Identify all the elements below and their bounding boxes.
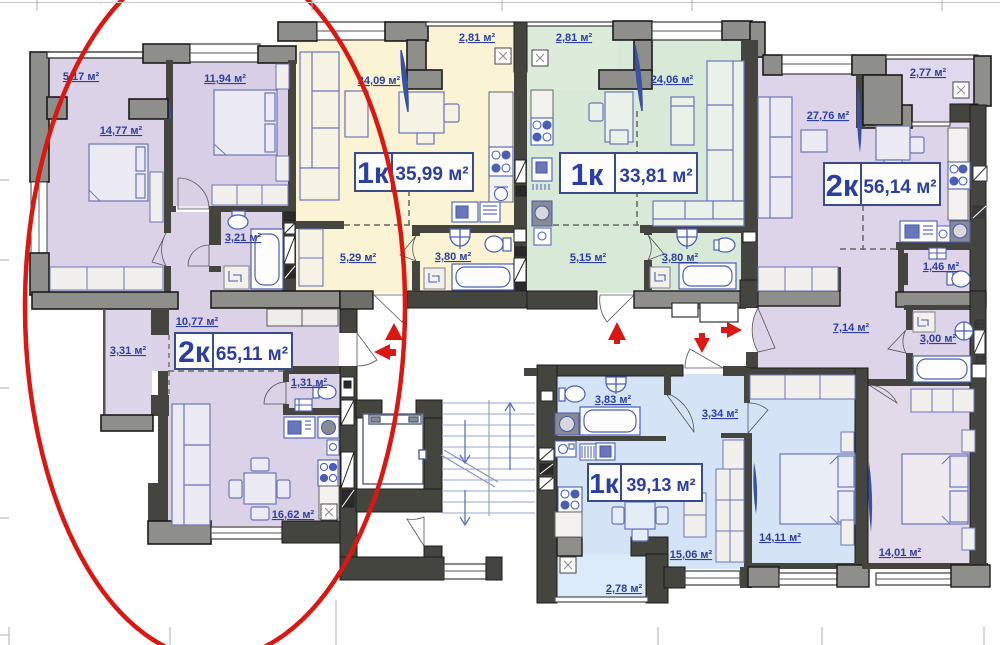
svg-text:65,11 м²: 65,11 м²: [216, 344, 288, 365]
svg-text:16,62 м²: 16,62 м²: [272, 509, 315, 521]
svg-text:15,06 м²: 15,06 м²: [670, 549, 713, 561]
svg-text:2,81 м²: 2,81 м²: [459, 32, 496, 44]
svg-text:11,94 м²: 11,94 м²: [204, 73, 246, 85]
svg-text:3,80 м²: 3,80 м²: [435, 251, 472, 263]
svg-text:24,06 м²: 24,06 м²: [651, 74, 694, 86]
svg-text:1,46 м²: 1,46 м²: [923, 261, 960, 273]
svg-text:2,78 м²: 2,78 м²: [606, 583, 643, 595]
svg-text:1,31 м²: 1,31 м²: [291, 377, 328, 389]
svg-text:27,76 м²: 27,76 м²: [807, 110, 850, 122]
svg-text:7,14 м²: 7,14 м²: [833, 322, 870, 334]
svg-text:1к: 1к: [571, 157, 604, 192]
svg-text:1к: 1к: [357, 157, 390, 190]
svg-text:56,14 м²: 56,14 м²: [863, 177, 936, 198]
svg-text:3,00 м²: 3,00 м²: [920, 333, 957, 345]
svg-text:5,15 м²: 5,15 м²: [570, 252, 607, 264]
svg-text:3,80 м²: 3,80 м²: [662, 252, 699, 264]
svg-text:3,34 м²: 3,34 м²: [702, 408, 739, 420]
svg-text:1к: 1к: [589, 468, 620, 499]
svg-text:14,01 м²: 14,01 м²: [879, 547, 922, 559]
svg-text:3,31 м²: 3,31 м²: [110, 345, 147, 357]
svg-text:10,77 м²: 10,77 м²: [176, 316, 219, 328]
svg-text:2к: 2к: [826, 168, 859, 203]
svg-text:3,83 м²: 3,83 м²: [595, 394, 632, 406]
svg-text:5,29 м²: 5,29 м²: [340, 252, 377, 264]
svg-text:2,81 м²: 2,81 м²: [556, 32, 593, 44]
svg-text:2к: 2к: [178, 336, 211, 369]
svg-text:14,11 м²: 14,11 м²: [759, 532, 801, 544]
svg-text:3,21 м²: 3,21 м²: [225, 232, 262, 244]
svg-text:2,77 м²: 2,77 м²: [910, 67, 947, 79]
svg-text:33,81 м²: 33,81 м²: [619, 166, 692, 187]
svg-text:39,13 м²: 39,13 м²: [626, 475, 695, 495]
svg-text:14,77 м²: 14,77 м²: [100, 125, 143, 137]
svg-text:35,99 м²: 35,99 м²: [395, 164, 468, 185]
